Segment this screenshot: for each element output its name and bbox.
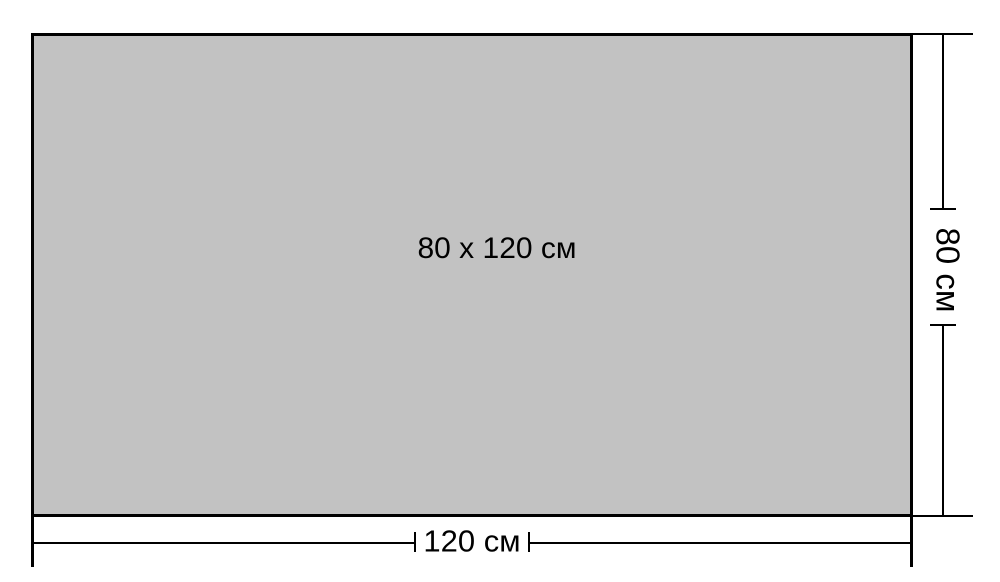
width-dimension-line-right-segment: [529, 542, 913, 544]
height-dimension-tick-bottom: [930, 324, 956, 326]
height-dimension-label: 80 см: [932, 227, 965, 312]
width-dimension-label: 120 см: [423, 526, 520, 557]
width-dimension-tick-left: [414, 532, 416, 552]
height-dimension-tick-top: [930, 208, 956, 210]
panel-size-label: 80 x 120 см: [417, 234, 576, 264]
height-dimension-line-lower-segment: [942, 325, 944, 517]
panel-rectangle: [31, 33, 913, 517]
dimension-diagram: 80 x 120 см 80 см 120 см: [0, 0, 1000, 582]
height-dimension-line-upper-segment: [942, 34, 944, 209]
width-dimension-line-left-segment: [32, 542, 414, 544]
width-dimension-tick-right: [528, 532, 530, 552]
